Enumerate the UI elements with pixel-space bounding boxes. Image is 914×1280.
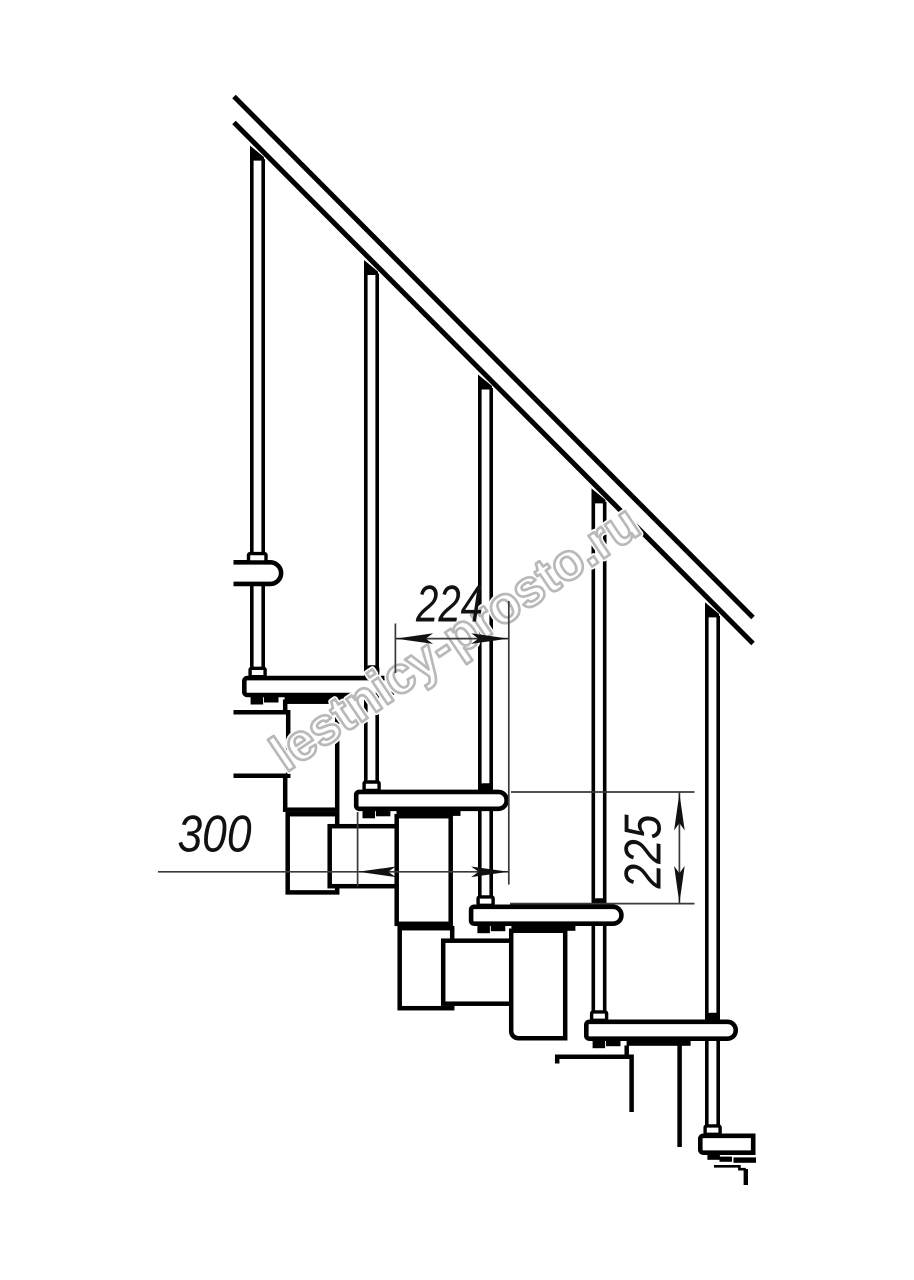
svg-text:225: 225 <box>615 814 673 890</box>
svg-text:300: 300 <box>178 806 252 864</box>
svg-text:224: 224 <box>415 576 483 634</box>
